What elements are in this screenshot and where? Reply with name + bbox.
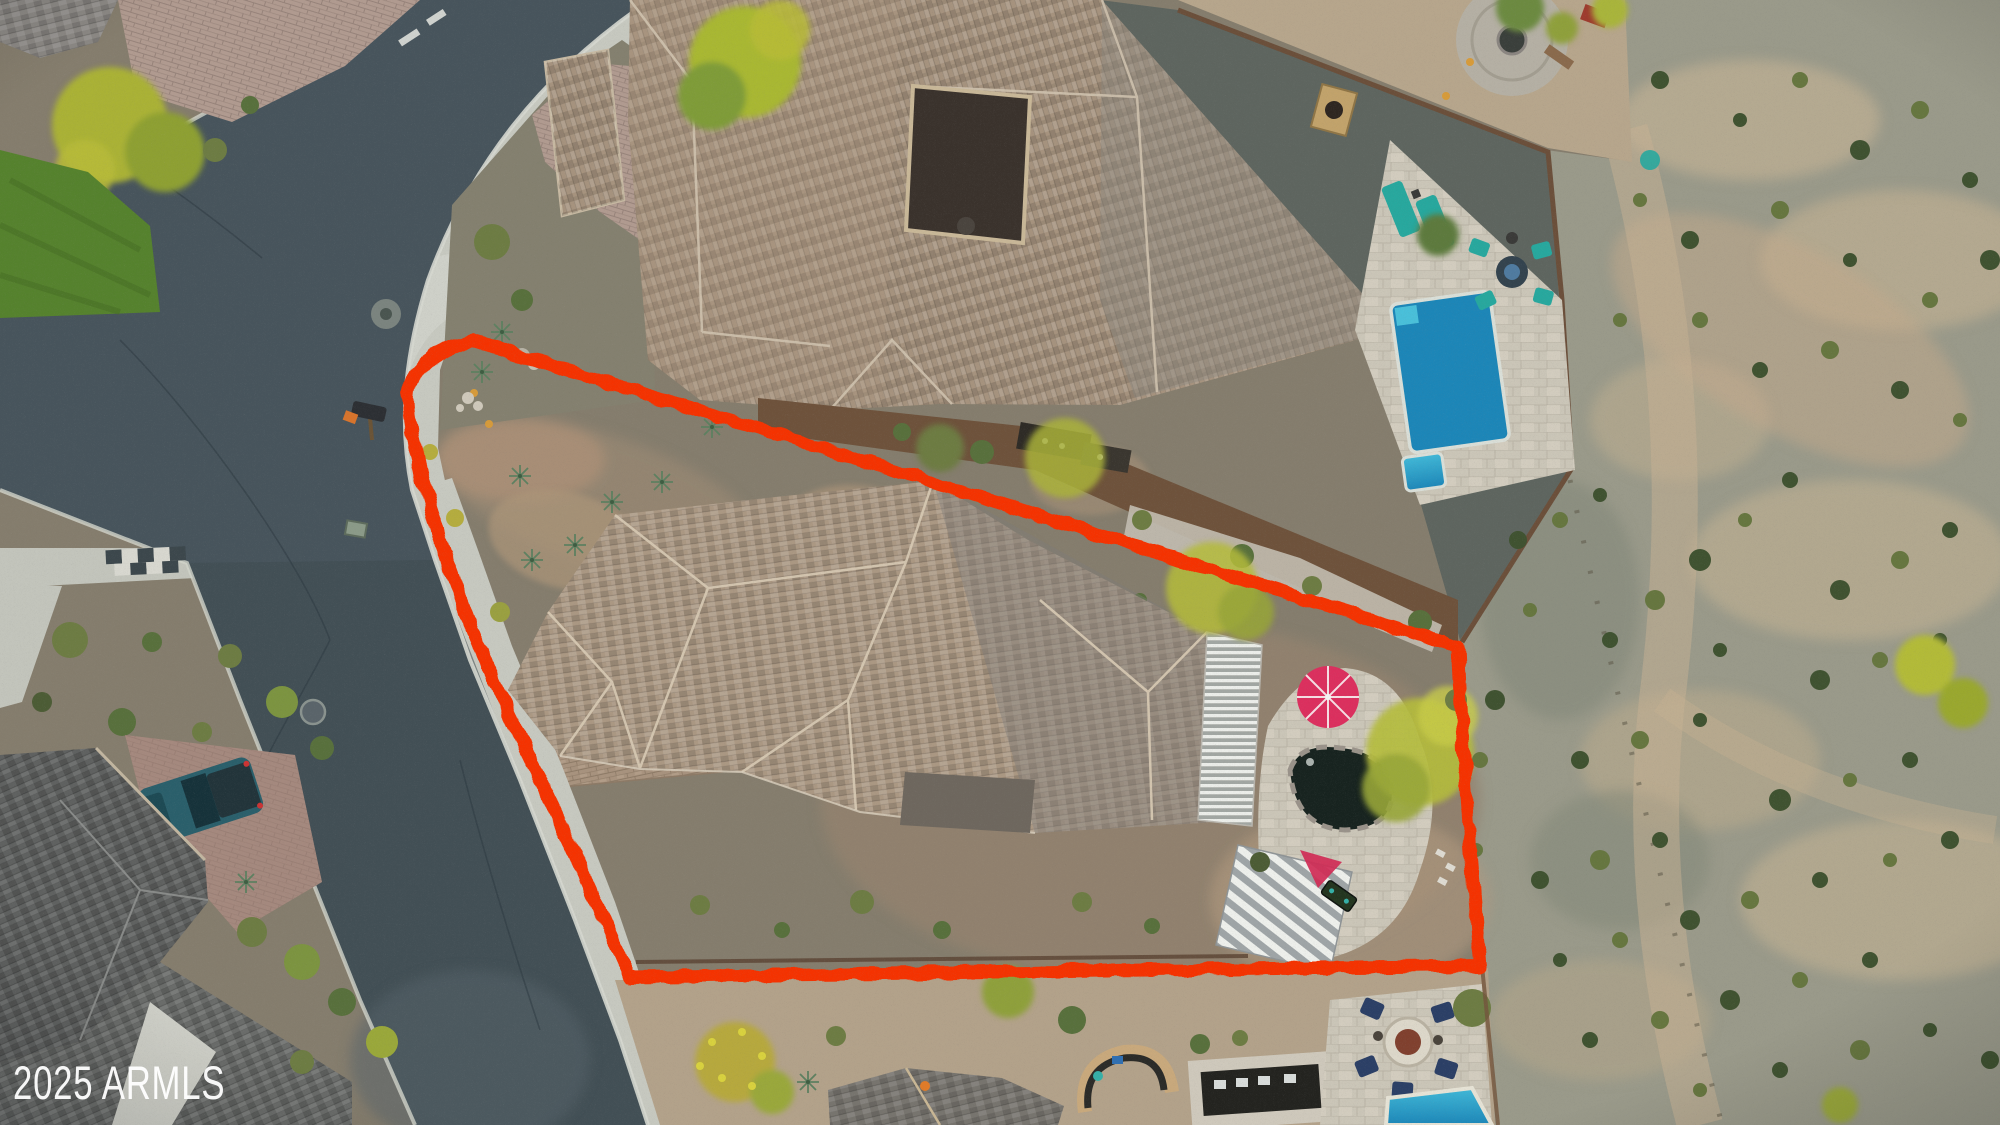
vignette xyxy=(0,0,2000,1125)
aerial-photo-canvas: 2025 ARMLS xyxy=(0,0,2000,1125)
watermark: 2025 ARMLS xyxy=(13,1057,225,1109)
aerial-photo: 2025 ARMLS xyxy=(0,0,2000,1125)
